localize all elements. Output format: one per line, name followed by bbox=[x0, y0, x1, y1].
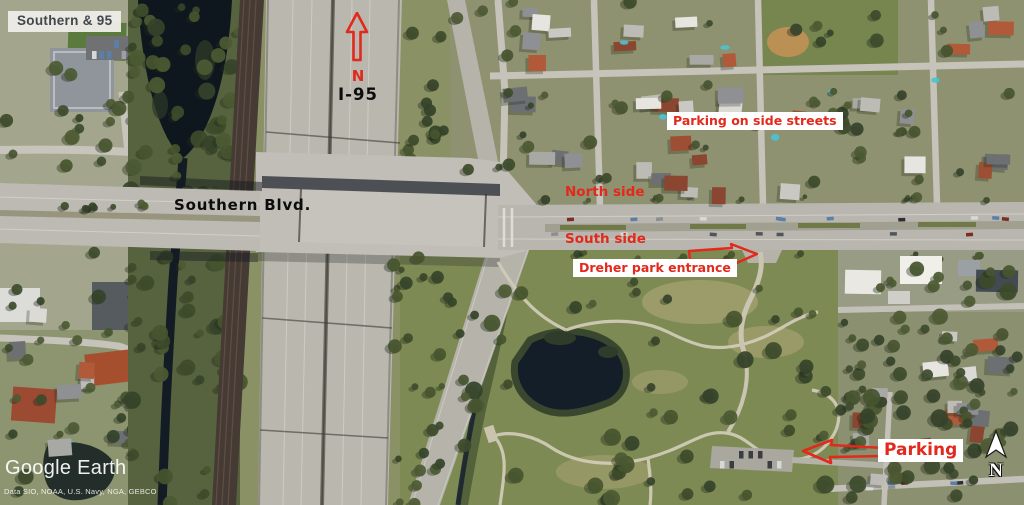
north-arrow-icon bbox=[345, 12, 371, 62]
annotated-satellite-view: Southern & 95 N I-95 Southern Blvd. Park… bbox=[0, 0, 1024, 505]
google-earth-logo: Google Earth bbox=[5, 457, 126, 479]
left-arrow-icon bbox=[801, 439, 885, 465]
north-arrow-annotation: N bbox=[340, 12, 376, 84]
southern-blvd-label: Southern Blvd. bbox=[174, 197, 311, 214]
overpass-deck bbox=[299, 189, 486, 247]
satellite-map[interactable] bbox=[0, 0, 1024, 505]
park-pond bbox=[514, 331, 626, 413]
south-side-label: South side bbox=[565, 232, 646, 247]
parking-label: Parking bbox=[878, 439, 963, 462]
dreher-entrance-label: Dreher park entrance bbox=[573, 259, 737, 277]
north-side-label: North side bbox=[565, 185, 644, 200]
compass-letter: N bbox=[980, 461, 1012, 482]
north-letter: N bbox=[340, 68, 376, 85]
parking-side-streets-label: Parking on side streets bbox=[667, 112, 843, 130]
title-overlay: Southern & 95 bbox=[8, 11, 121, 32]
red-roof-house bbox=[11, 387, 57, 424]
compass: N bbox=[980, 429, 1012, 481]
data-attribution: Data SIO, NOAA, U.S. Navy, NGA, GEBCO bbox=[4, 488, 157, 496]
i95-label: I-95 bbox=[338, 86, 378, 104]
compass-needle-icon bbox=[980, 429, 1012, 459]
